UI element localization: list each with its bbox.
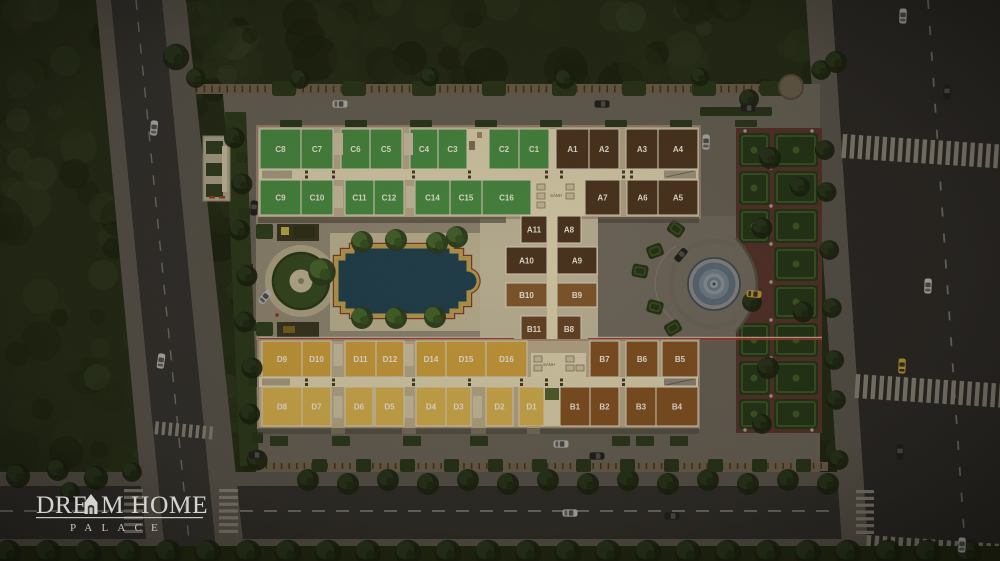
svg-text:PALACE: PALACE	[70, 522, 167, 534]
svg-text:DRE: DRE	[36, 490, 89, 519]
svg-text:M HOME: M HOME	[101, 490, 208, 519]
